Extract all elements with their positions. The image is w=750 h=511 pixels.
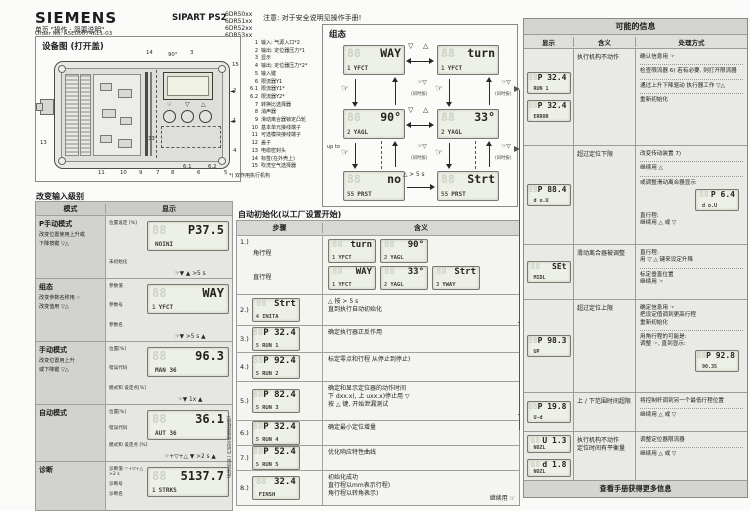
display-cell: 参数值参数号参数名88WAY1YFCT☞▼ >5 s ▲	[106, 279, 232, 341]
mode-cell: 手动模式改变位置用上升或下降键 ▽△	[36, 342, 106, 404]
mode-name: 手动模式	[39, 345, 102, 355]
device-display	[163, 72, 213, 100]
model-number: 6DR52xx	[225, 25, 252, 32]
legend-label: 可选模块接线端子	[261, 132, 301, 140]
action-line: 用角行程的可能是:	[640, 334, 743, 341]
message-row: 88SEtMIDL滑动离合器被调整直行程:用 ▽ △ 键来设定升降标定垂直位置继…	[524, 245, 747, 300]
step-cell: 8.)8832.4FINSH	[237, 471, 323, 505]
mode-name: 诊断	[39, 465, 102, 475]
lcd-display: 88P 92.45RUN 2	[252, 355, 300, 379]
message-meaning-cell: 滑动离合器被调整	[574, 245, 636, 299]
legend-item: 5输入键	[247, 71, 321, 79]
meaning-cell: 确定执行器正反作用	[323, 326, 519, 352]
column-header-mode: 模式	[36, 204, 106, 214]
terminal-strip	[80, 74, 91, 156]
legend-number: 1	[247, 40, 258, 48]
legend-number: 12	[247, 140, 258, 148]
step-number: 7.)	[240, 454, 249, 462]
legend-number: 4	[247, 63, 258, 71]
callout-number: 13	[40, 141, 47, 146]
device-housing: ☞ ▽ △	[54, 61, 230, 169]
lcd-display: 8890°2YAGL	[343, 109, 405, 139]
input-level-row: 组态改变参数名称用 ☞改变值用 ▽△参数值参数号参数名88WAY1YFCT☞▼ …	[36, 278, 232, 341]
mode-description: 改变位置用上升	[39, 358, 102, 364]
lcd-display: 88P 52.45RUN 5	[252, 446, 300, 470]
meaning-cell: 确定最小定位增量	[323, 421, 519, 445]
action-line: 直行程:	[640, 213, 743, 220]
step-cell: 3.)88P 32.45RUN 1	[237, 326, 323, 352]
callout-number: 7	[156, 171, 159, 176]
lcd-display: 88P 19.8U-d	[527, 401, 571, 423]
mode-transition-keys: ☞▼ >5 s ▲	[148, 334, 232, 340]
callout-number: 9	[139, 171, 142, 176]
callout-number: 6.1	[183, 165, 192, 170]
auto-init-row: 4.)88P 92.45RUN 2标定零点和行程 从停止到停止)	[237, 352, 519, 381]
legend-label: 输出: 定位器压力*1	[261, 48, 305, 56]
message-row: 88U 1.3NOZL88d 1.8NOZL执行机构不动作定位时间有平衡量调整定…	[524, 432, 747, 481]
lcd-display: 8833°2YAGL	[380, 266, 428, 290]
legend-item: 11可选模块接线端子	[247, 132, 321, 140]
auto-init-row: 3.)88P 32.45RUN 1确定执行器正反作用	[237, 325, 519, 352]
lcd-display: 88P37.5NOINI	[147, 221, 229, 251]
message-meaning-cell: 执行机构不动作定位时间有平衡量	[574, 432, 636, 480]
display-label: 未初始化	[109, 260, 149, 265]
message-action-cell: 直行程:用 ▽ △ 键来设定升降标定垂直位置继续用 ☞	[636, 245, 747, 299]
lcd-display: 88P 32.4RUN 1	[527, 72, 571, 94]
action-line: 重新初始化	[640, 320, 743, 327]
down-key-icon: ▽	[408, 43, 413, 50]
simultaneous-label: (同时按)	[411, 155, 427, 161]
message-display-cell: 88SEtMIDL	[524, 245, 574, 299]
mode-transition-keys: ☞+▽+△ ▼ >2 s ▲	[148, 454, 232, 460]
legend-label: 输入: 气源入口*2	[261, 40, 300, 48]
display-label: 诊断值 ☞+▽+△ >2 s	[109, 467, 149, 478]
down-button	[181, 110, 194, 123]
legend-number: 6.1	[247, 86, 258, 94]
display-label: 模式和 设定点[%]	[109, 386, 149, 391]
lcd-display: 88P 88.4d o.U	[527, 184, 571, 206]
meaning-line: 确定执行器正反作用	[328, 329, 514, 337]
lcd-display: 88P 32.4ERROR	[527, 100, 571, 122]
down-key-icon: ▽	[408, 107, 413, 114]
step-number: 8.)	[240, 484, 249, 492]
callout-number: 15	[232, 63, 239, 68]
message-meaning-cell: 超过定位下限	[574, 146, 636, 244]
step-number: 5.)	[240, 397, 249, 405]
legend-item: 6.1限流器Y1*	[247, 86, 321, 94]
device-panel-title: 设备图 (打开盖)	[42, 40, 104, 52]
auto-init-table: 步骤 含义 1.)角行程直行程88turn1YFCT8890°2YAGL88WA…	[236, 220, 520, 506]
flow-arrow-up	[489, 79, 490, 105]
message-display-cell: 88P 98.3UP	[524, 300, 574, 392]
message-row: 88P 88.4d o.U超过定位下限改变传动装置 7)继续用 △或调整滑动离合…	[524, 146, 747, 245]
hand-key-icon: ☞	[341, 85, 349, 94]
flow-arrow-up	[489, 143, 490, 167]
legend-item: 8消声器	[247, 109, 321, 117]
display-cell: 位置[%]错误代码模式和 设定点[%]8896.3MAN 36☞▼ 1x ▲	[106, 342, 232, 404]
auto-init-header: 步骤 含义	[237, 221, 519, 235]
flow-arrow-down	[449, 79, 450, 105]
connector-tick	[518, 322, 520, 323]
messages-header: 显示 含义 处理方式	[524, 35, 747, 49]
mode-name: P手动模式	[39, 219, 102, 229]
lcd-display: 88P 32.45RUN 4	[252, 421, 300, 445]
device-footnote: *) 双作用执行机构	[229, 172, 270, 179]
legend-item: 13电缆密封头	[247, 148, 321, 156]
gear-slot	[150, 72, 152, 156]
message-row: 88P 32.4RUN 188P 32.4ERROR执行机构不动作确认信息用 ☞…	[524, 49, 747, 146]
stroke-caption: 直行程	[253, 272, 272, 281]
callout-number: 6	[197, 171, 200, 176]
meaning-line: 确定最小定位增量	[328, 424, 514, 432]
legend-label: 显示	[261, 55, 271, 63]
lcd-display: 88P 92.890.35	[695, 350, 739, 372]
mode-cell: P手动模式改变位置使用上升或下降按键 ▽△	[36, 216, 106, 278]
config-flow-panel: 组态 88WAY1YFCT88turn1YFCT8890°2YAGL8833°2…	[322, 24, 518, 207]
message-row: 88P 98.3UP超过定位上限确定信息用 ☞把设定值调到更高行程重新初始化用角…	[524, 300, 747, 393]
dashed-line	[475, 141, 476, 169]
lcd-display: 885137.71STRKS	[147, 467, 229, 497]
step-cell: 1.)角行程直行程	[237, 236, 323, 294]
display-cell: 位置设定 [%]未初始化88P37.5NOINI☞▼ ▲ >5 s	[106, 216, 232, 278]
meaning-line: 标定零点和行程 从停止到停止)	[328, 356, 514, 364]
legend-number: 8	[247, 109, 258, 117]
meaning-line: 按 △ 键, 开始泄漏测试	[328, 401, 514, 409]
lcd-display: 88Strt55PRST	[437, 171, 499, 201]
lcd-display: 88U 1.3NOZL	[527, 435, 571, 453]
auto-init-row: 1.)角行程直行程88turn1YFCT8890°2YAGL88WAY1YFCT…	[237, 235, 519, 294]
model-number: 6DR51xx	[225, 18, 252, 25]
meaning-line: 直到执行自动初始化	[328, 306, 514, 314]
column-header-meaning: 含义	[323, 223, 519, 233]
screw-icon	[218, 157, 226, 165]
legend-item: 12盖子	[247, 140, 321, 148]
meaning-cell: 初始化成功直行程以mm表示行程)角行程以转角表示)继续用 ☞	[323, 471, 519, 505]
message-meaning-cell: 上 / 下范围时间超限	[574, 393, 636, 431]
simultaneous-label: (同时按)	[495, 155, 511, 161]
legend-label: 盖子	[261, 140, 271, 148]
input-levels-header: 模式 显示	[36, 202, 232, 215]
display-label: 位置[%]	[109, 410, 149, 415]
model-number: 6DR50xx	[225, 11, 252, 18]
meaning-cell: 标定零点和行程 从停止到停止)	[323, 353, 519, 381]
messages-title: 可能的信息	[524, 19, 747, 35]
dashed-line	[381, 141, 382, 169]
legend-label: 消声器	[261, 109, 276, 117]
action-line: 继续用 ☞	[640, 279, 743, 286]
action-line: 或调整滑动离合器显示	[640, 180, 743, 187]
up-button	[199, 110, 212, 123]
legend-item: 7转换比选择器	[247, 102, 321, 110]
action-line: 改变传动装置 7)	[640, 151, 743, 158]
mode-name: 组态	[39, 282, 102, 292]
mode-transition-keys: ☞▼ 1x ▲	[148, 397, 232, 403]
callout-number: 3	[190, 51, 193, 56]
safety-note: 注意: 对于安全说明见操作手册!	[263, 13, 361, 23]
auto-init-row: 5.)88P 82.45RUN 3确定和显示定位器的动作时间下 dxx.x), …	[237, 381, 519, 420]
action-line: 用 ▽ △ 键来设定升降	[640, 257, 743, 264]
hand-down-keys: ☞▽	[417, 145, 427, 151]
meaning-line: 确定和显示定位器的动作时间	[328, 385, 514, 393]
legend-item: 1输入: 气源入口*2	[247, 40, 321, 48]
toggle-arrow	[408, 125, 432, 126]
message-action-cell: 确认信息用 ☞检查限流器 6) 若有必要, 则打开限流器通过上升下降驱动 执行器…	[636, 49, 747, 145]
message-display-cell: 88P 88.4d o.U	[524, 146, 574, 244]
message-action-cell: 将控制杆调到另一个最低行程位置继续用 △ 或 ▽	[636, 393, 747, 431]
hand-key-icon: ☞	[435, 149, 443, 158]
meaning-line: △ 按 > 5 s	[328, 298, 514, 306]
legend-label: 电缆密封头	[261, 148, 286, 156]
lcd-display: 88Strt4INITA	[252, 298, 300, 322]
lcd-display: 8833°2YAGL	[437, 109, 499, 139]
message-meaning-cell: 执行机构不动作	[574, 49, 636, 145]
message-display-cell: 88P 32.4RUN 188P 32.4ERROR	[524, 49, 574, 145]
display-label: 位置[%]	[109, 347, 149, 352]
message-display-cell: 88U 1.3NOZL88d 1.8NOZL	[524, 432, 574, 480]
input-level-row: 自动模式位置[%]错误代码模式和 设定点 [%]8836.1AUT 36☞+▽+…	[36, 404, 232, 461]
up-key-icon: △	[423, 43, 428, 50]
action-line: 检查限流器 6) 若有必要, 则打开限流器	[640, 68, 743, 75]
lcd-display: 88P 98.3UP	[527, 335, 571, 357]
device-diagram-panel: 设备图 (打开盖) ☞ ▽ △	[35, 36, 241, 182]
product-name: SIPART PS2	[172, 13, 227, 23]
auto-init-row: 8.)8832.4FINSH初始化成功直行程以mm表示行程)角行程以转角表示)继…	[237, 470, 519, 505]
hand-key-icon: ☞	[435, 85, 443, 94]
step-number: 4.)	[240, 363, 249, 371]
action-line: 继续用 △ 或 ▽	[640, 451, 743, 458]
display-label: 错误代码	[109, 426, 149, 431]
lcd-display: 88P 32.45RUN 1	[252, 327, 300, 351]
callout-number: 8	[171, 171, 174, 176]
hold-label: △ > 5 s	[403, 173, 425, 179]
step-cell: 7.)88P 52.45RUN 5	[237, 446, 323, 470]
lcd-display: 88WAY1YFCT	[343, 45, 405, 75]
lcd-display: 8896.3MAN 36	[147, 347, 229, 377]
step-number: 3.)	[240, 335, 249, 343]
column-header-display: 显示	[106, 204, 232, 214]
legend-number: 2	[247, 48, 258, 56]
step-number: 6.)	[240, 429, 249, 437]
lcd-display: 88WAY1YFCT	[147, 284, 229, 314]
display-label: 诊断号	[109, 482, 149, 487]
meaning-line: 定位时间有平衡量	[577, 445, 632, 453]
messages-panel: 可能的信息 显示 含义 处理方式 88P 32.4RUN 188P 32.4ER…	[523, 18, 748, 498]
lcd-display: 88turn1YFCT	[328, 239, 376, 263]
action-line: 通过上升下降驱动 执行器工作 ▽△	[640, 83, 743, 90]
step-cell: 4.)88P 92.45RUN 2	[237, 353, 323, 381]
step-number: 2.)	[240, 306, 249, 314]
toggle-arrow	[408, 61, 432, 62]
lcd-display: 8890°2YAGL	[380, 239, 428, 263]
lcd-display: 88P 82.45RUN 3	[252, 389, 300, 413]
action-line: 确认信息用 ☞	[640, 54, 743, 61]
lcd-display: 88P 6.4d o.U	[695, 189, 739, 211]
meaning-line: 下 dxx.x), 上 uxx.x)停止用 ▽	[328, 393, 514, 401]
callout-number: 33°	[148, 137, 158, 142]
legend-item: 6.2限流器Y2*	[247, 94, 321, 102]
lcd-display: 8832.4FINSH	[252, 476, 300, 500]
meaning-line: 上 / 下范围时间超限	[577, 398, 632, 406]
simultaneous-label: (同时按)	[495, 91, 511, 97]
meaning-line: 优化响应特性曲线	[328, 449, 514, 457]
legend-number: 11	[247, 132, 258, 140]
legend-item: 15吹洗空气选择器	[247, 163, 321, 171]
lcd-display: 88SEtMIDL	[527, 261, 571, 283]
callout-number: 4	[233, 149, 236, 154]
simultaneous-label: (同时按)	[411, 91, 427, 97]
continue-note: 继续用 ☞	[490, 495, 515, 503]
screw-icon	[218, 65, 226, 73]
step-cell: 5.)88P 82.45RUN 3	[237, 382, 323, 420]
lcd-display: 88WAY1YFCT	[328, 266, 376, 290]
legend-label: 吹洗空气选择器	[261, 163, 296, 171]
meaning-cell: 88turn1YFCT8890°2YAGL88WAY1YFCT8833°2YAG…	[323, 236, 519, 294]
hand-down-keys: ☞▽	[501, 145, 511, 151]
display-label: 诊断名	[109, 492, 149, 497]
connector-arrow-icon	[514, 146, 523, 152]
display-label: 位置设定 [%]	[109, 221, 149, 226]
auto-init-row: 2.)88Strt4INITA△ 按 > 5 s直到执行自动初始化	[237, 294, 519, 325]
legend-label: 滑动离合器锁定凸轮	[261, 117, 306, 125]
legend-label: 限流器Y1*	[261, 86, 285, 94]
hand-down-keys: ☞▽	[417, 81, 427, 87]
terminal-strip	[65, 74, 79, 156]
hand-down-keys: ☞▽	[501, 81, 511, 87]
meaning-line: 执行机构不动作	[577, 54, 632, 62]
action-line: 标定垂直位置	[640, 272, 743, 279]
restrictor-area	[161, 126, 221, 148]
message-row: 88P 19.8U-d上 / 下范围时间超限将控制杆调到另一个最低行程位置继续用…	[524, 393, 747, 432]
legend-number: 10	[247, 125, 258, 133]
flow-arrow-up	[395, 79, 396, 105]
display-cell: 诊断值 ☞+▽+△ >2 s诊断号诊断名885137.71STRKS	[106, 462, 232, 510]
up-key-icon: △	[201, 102, 206, 108]
upto-label: up to	[327, 145, 340, 150]
meaning-line: 执行机构不动作	[577, 437, 632, 445]
mode-cell: 组态改变参数名称用 ☞改变值用 ▽△	[36, 279, 106, 341]
callout-number: 90°	[168, 53, 178, 58]
legend-label: 限流器Y2*	[261, 94, 285, 102]
module-area	[93, 74, 141, 156]
meaning-line: 角行程以转角表示)	[328, 490, 514, 498]
legend-item: 3显示	[247, 55, 321, 63]
step-number: 1.)	[240, 238, 249, 246]
display-label: 参数值	[109, 284, 149, 289]
step-cell: 2.)88Strt4INITA	[237, 295, 323, 325]
action-line: 将控制杆调到另一个最低行程位置	[640, 398, 743, 405]
mode-description: 改变位置使用上升或	[39, 232, 102, 238]
lcd-display: 8836.1AUT 36	[147, 410, 229, 440]
legend-number: 15	[247, 163, 258, 171]
mode-cell: 诊断	[36, 462, 106, 510]
mode-description: 改变参数名称用 ☞	[39, 295, 102, 301]
lcd-display: 88Strt3YWAY	[432, 266, 480, 290]
device-legend: 1输入: 气源入口*22输出: 定位器压力*13显示4输出: 定位器压力*2*5…	[247, 40, 321, 171]
legend-number: 13	[247, 148, 258, 156]
action-line: 继续用 △	[640, 165, 743, 172]
input-level-row: 手动模式改变位置用上升或下降键 ▽△位置[%]错误代码模式和 设定点[%]889…	[36, 341, 232, 404]
column-header-meaning: 含义	[574, 37, 636, 47]
up-key-icon: △	[423, 107, 428, 114]
action-line: 调整 ☞, 直到显示:	[640, 341, 743, 348]
callout-number: 6.2	[208, 165, 217, 170]
column-header-display: 显示	[524, 37, 574, 47]
legend-label: 输入键	[261, 71, 276, 79]
action-line: 继续用 △ 或 ▽	[640, 412, 743, 419]
hand-key-icon: ☞	[341, 149, 349, 158]
legend-number: 3	[247, 55, 258, 63]
callout-number: 2	[233, 89, 236, 94]
message-action-cell: 确定信息用 ☞把设定值调到更高行程重新初始化用角行程的可能是:调整 ☞, 直到显…	[636, 300, 747, 392]
mode-description: 或下降键 ▽△	[39, 367, 102, 373]
auto-init-row: 6.)88P 32.45RUN 4确定最小定位增量	[237, 420, 519, 445]
display-label: 参数名	[109, 323, 149, 328]
action-line: 把设定值调到更高行程	[640, 312, 743, 319]
legend-number: 7	[247, 102, 258, 110]
legend-number: 5	[247, 71, 258, 79]
legend-item: 9滑动离合器锁定凸轮	[247, 117, 321, 125]
callout-number: 1	[233, 119, 236, 124]
meaning-line: 超过定位上限	[577, 305, 632, 313]
legend-label: 输出: 定位器压力*2*	[261, 63, 307, 71]
model-list: 6DR50xx6DR51xx6DR52xx6DR53xx	[225, 11, 252, 39]
flow-arrow-down	[355, 79, 356, 105]
legend-item: 2输出: 定位器压力*1	[247, 48, 321, 56]
action-line: 继续用 △ 或 ▽	[640, 220, 743, 227]
meaning-cell: 优化响应特性曲线	[323, 446, 519, 470]
connector-arrow-icon	[514, 86, 523, 92]
action-line: 调整定位器限流器	[640, 437, 743, 444]
message-action-cell: 改变传动装置 7)继续用 △或调整滑动离合器显示88P 6.4d o.U直行程:…	[636, 146, 747, 244]
display-label: 参数号	[109, 303, 149, 308]
mode-transition-keys: ☞▼ ▲ >5 s	[148, 271, 232, 277]
connector-tick	[518, 414, 520, 415]
screw-icon	[58, 157, 66, 165]
message-display-cell: 88P 19.8U-d	[524, 393, 574, 431]
legend-number: 6.2	[247, 94, 258, 102]
legend-number: 14	[247, 156, 258, 164]
legend-number: 9	[247, 117, 258, 125]
callout-number: 10	[120, 171, 127, 176]
lcd-display: 88no55PRST	[343, 171, 405, 201]
step-cell: 6.)88P 32.45RUN 4	[237, 421, 323, 445]
flow-arrow-up	[395, 143, 396, 167]
divider	[156, 70, 157, 158]
mode-description: 下降按键 ▽△	[39, 241, 102, 247]
legend-number: 6	[247, 79, 258, 87]
meaning-line: 滑动离合器被调整	[577, 250, 632, 258]
action-line: 重新初始化	[640, 97, 743, 104]
config-panel-title: 组态	[329, 28, 346, 40]
input-levels-table: 模式 显示 P手动模式改变位置使用上升或下降按键 ▽△位置设定 [%]未初始化8…	[35, 201, 233, 511]
messages-footer: 查看手册获得更多信息	[524, 481, 747, 497]
input-level-row: P手动模式改变位置使用上升或下降按键 ▽△位置设定 [%]未初始化88P37.5…	[36, 215, 232, 278]
auto-init-side-note: (在显示屏一行的灰色值是样例)	[227, 268, 233, 478]
meaning-line: 超过定位下限	[577, 151, 632, 159]
down-key-icon: ▽	[185, 102, 190, 108]
lcd-display: 88d 1.8NOZL	[527, 459, 571, 477]
auto-init-title: 自动初始化(以工厂设置开始)	[238, 209, 341, 220]
connector-line	[519, 90, 520, 430]
mode-description: 改变值用 ▽△	[39, 304, 102, 310]
column-header-action: 处理方式	[636, 37, 747, 47]
legend-item: 4输出: 定位器压力*2*	[247, 63, 321, 71]
stroke-caption: 角行程	[253, 248, 272, 257]
auto-init-row: 7.)88P 52.45RUN 5优化响应特性曲线	[237, 445, 519, 470]
flow-arrow-down	[449, 143, 450, 167]
meaning-line: 初始化成功	[328, 474, 514, 482]
cable-gland	[36, 103, 43, 111]
